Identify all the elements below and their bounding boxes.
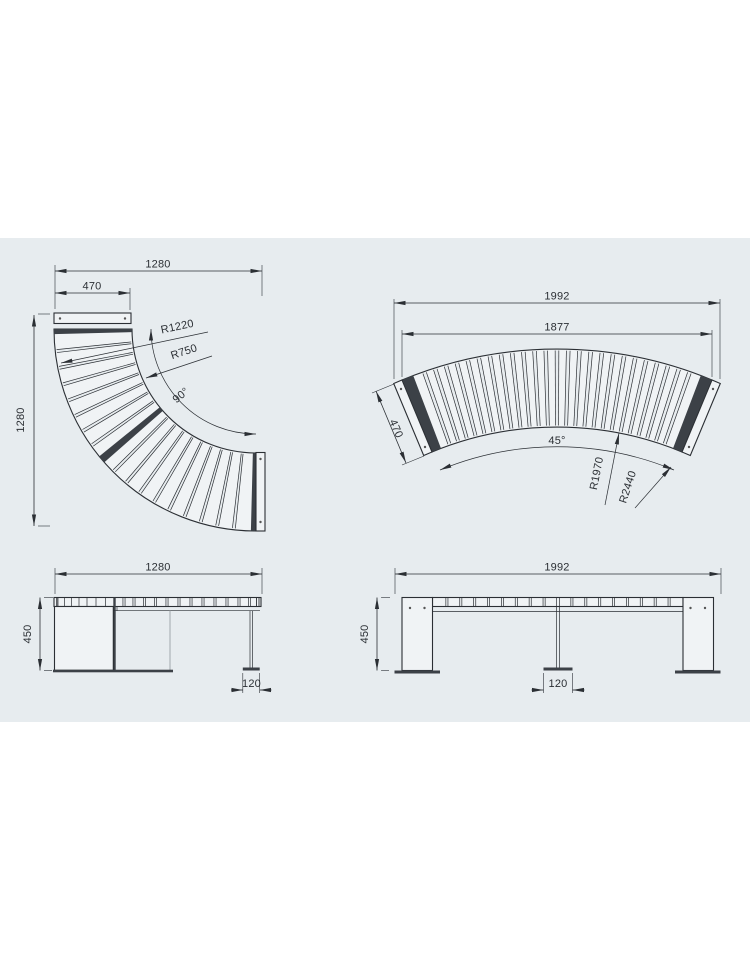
screw (409, 607, 411, 609)
end-plate-top (54, 313, 131, 324)
screw (59, 317, 61, 319)
plan45-overall-width-label: 1992 (544, 291, 569, 303)
plan90-overall-width-label: 1280 (145, 259, 170, 271)
end-panel-right (683, 598, 714, 671)
plan45-angle-label: 45° (548, 435, 565, 447)
seat-edge-band (433, 598, 684, 607)
screw (259, 458, 261, 460)
bench-technical-drawing: 1280 470 1280 R1220 R750 90° 19 (0, 0, 750, 962)
panel-foot (395, 671, 441, 674)
leg-foot (243, 668, 260, 671)
center-leg-foot (544, 668, 573, 671)
screw (400, 388, 402, 390)
drawing-sheet: 1280 470 1280 R1220 R750 90° 19 (0, 0, 750, 962)
front90-height-label: 450 (22, 625, 34, 644)
plan90-seat-depth-label: 470 (83, 281, 102, 293)
seat-edge-band (54, 598, 261, 607)
front90-foot-label: 120 (242, 678, 261, 690)
screw (423, 607, 425, 609)
curved-seat-panel (55, 607, 114, 671)
end-panel-left (402, 598, 433, 671)
screw (124, 317, 126, 319)
screw (704, 607, 706, 609)
screw (689, 607, 691, 609)
plan90-overall-depth-label: 1280 (15, 407, 27, 432)
front45-foot-label: 120 (549, 678, 568, 690)
screw (712, 388, 714, 390)
front45-width-label: 1992 (544, 562, 569, 574)
front45-height-label: 450 (359, 625, 371, 644)
screw (259, 521, 261, 523)
front90-width-label: 1280 (145, 562, 170, 574)
screw (424, 446, 426, 448)
screw (688, 446, 690, 448)
end-plate-right (256, 453, 265, 532)
panel-foot (675, 671, 721, 674)
ground-line (53, 670, 173, 673)
plan45-outer-chord-label: 1877 (544, 322, 569, 334)
